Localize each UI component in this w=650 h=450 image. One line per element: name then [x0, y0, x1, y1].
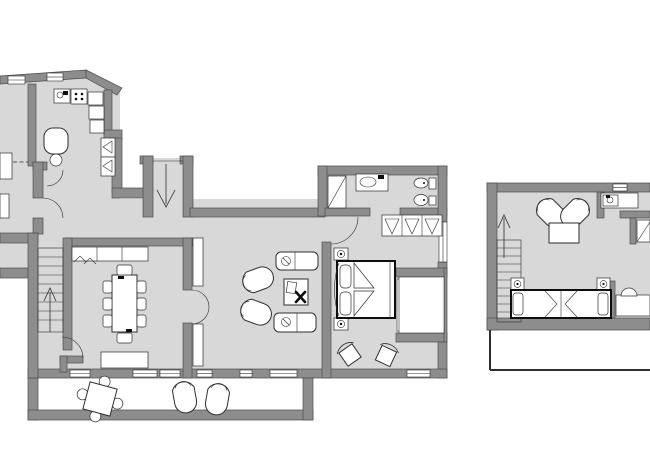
pillow — [598, 293, 608, 315]
dining-table — [112, 275, 137, 332]
toilet — [414, 178, 436, 189]
hanging-closet — [382, 215, 442, 236]
sideboard-bottom — [101, 352, 148, 368]
double-bed — [335, 261, 396, 318]
floor-plan-canvas — [0, 0, 650, 450]
lounge-seat — [276, 252, 318, 270]
lounge-seat — [274, 313, 316, 332]
kitchen-cabinets — [88, 92, 104, 133]
floor-plan-drawing — [0, 0, 650, 450]
washbasin — [356, 174, 388, 191]
nightstand-lamp — [511, 278, 524, 290]
kitchen-chair — [50, 154, 62, 166]
side-table — [549, 223, 579, 243]
stove-icon — [71, 89, 87, 104]
pillow — [340, 292, 351, 315]
pillow — [513, 293, 523, 315]
nightstand-lamp — [334, 318, 348, 330]
nightstand-lamp — [597, 278, 610, 290]
bidet — [414, 195, 436, 206]
corner-fixture — [637, 220, 650, 242]
roof-terrace-parapet — [490, 330, 650, 370]
pillow — [340, 265, 351, 288]
nightstand-lamp — [334, 248, 348, 260]
desk-with-chair — [284, 279, 308, 305]
shelf-cabinet — [193, 324, 203, 366]
kitchen-table — [44, 128, 68, 154]
balcony-floor — [399, 277, 444, 333]
main-floor-plan — [0, 70, 447, 428]
shower — [328, 176, 346, 208]
hall-wardrobe — [101, 138, 115, 176]
terrace-chair — [171, 380, 198, 415]
shelf-cabinet — [193, 238, 203, 286]
upper-floor-plan — [487, 183, 650, 370]
washbasin-upper — [601, 193, 638, 208]
